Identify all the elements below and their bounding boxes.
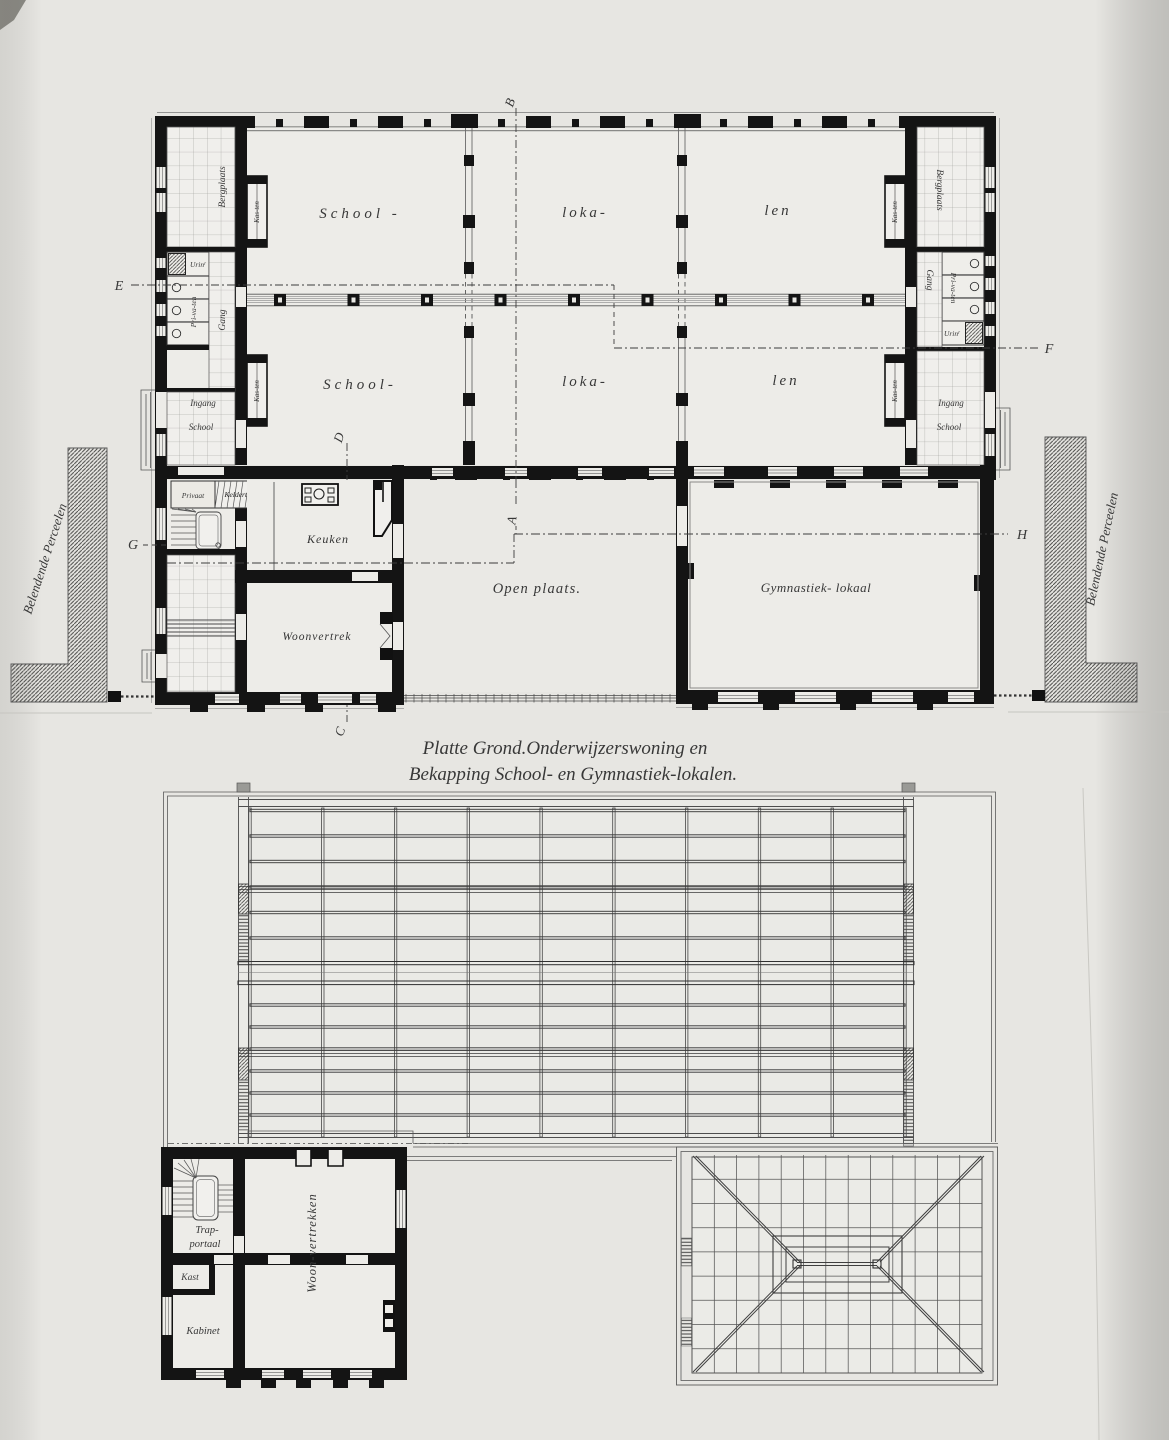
svg-text:G: G <box>128 538 138 553</box>
svg-text:len: len <box>772 373 799 389</box>
svg-text:School: School <box>189 422 214 432</box>
svg-text:Woonvertrek: Woonvertrek <box>283 631 352 643</box>
svg-text:Privaat: Privaat <box>181 491 205 500</box>
svg-text:Keuken: Keuken <box>306 532 349 546</box>
svg-text:Kabinet: Kabinet <box>185 1326 220 1337</box>
svg-text:loka-: loka- <box>562 205 608 221</box>
svg-text:Urinr: Urinr <box>190 260 206 269</box>
svg-text:Pri-va-ten: Pri-va-ten <box>189 296 198 328</box>
svg-text:Bergplaats: Bergplaats <box>218 166 228 208</box>
svg-text:School-: School- <box>323 377 397 393</box>
svg-text:Bergplaats: Bergplaats <box>934 169 944 211</box>
svg-text:loka-: loka- <box>562 374 608 390</box>
svg-text:Platte Grond.Onderwijzerswonin: Platte Grond.Onderwijzerswoning en <box>422 738 708 759</box>
svg-text:len: len <box>764 203 791 219</box>
svg-text:Kas-ten: Kas-ten <box>891 380 899 403</box>
svg-text:Kas-ten: Kas-ten <box>891 201 899 224</box>
svg-text:F: F <box>1044 342 1054 357</box>
svg-text:School: School <box>937 422 962 432</box>
svg-text:Bekapping School- en Gymnastie: Bekapping School- en Gymnastiek-lokalen. <box>409 764 737 785</box>
svg-text:Ingang: Ingang <box>937 398 964 408</box>
svg-text:Pri-va-ten: Pri-va-ten <box>949 272 958 304</box>
svg-text:Gymnastiek- lokaal: Gymnastiek- lokaal <box>761 580 871 595</box>
svg-text:portaal: portaal <box>189 1239 221 1250</box>
svg-text:Ingang: Ingang <box>189 398 216 408</box>
svg-text:Open plaats.: Open plaats. <box>493 581 582 597</box>
svg-text:Gang: Gang <box>218 309 228 330</box>
svg-text:Woon-vertrekken: Woon-vertrekken <box>305 1193 319 1292</box>
svg-text:Kas-ten: Kas-ten <box>253 201 261 224</box>
svg-text:E: E <box>114 279 124 294</box>
svg-text:Urinr: Urinr <box>944 329 960 338</box>
svg-text:School -: School - <box>319 206 401 222</box>
svg-text:H: H <box>1016 528 1028 543</box>
svg-text:Kast: Kast <box>180 1273 199 1283</box>
svg-text:Kas-ten: Kas-ten <box>253 380 261 403</box>
svg-text:Trap-: Trap- <box>195 1225 219 1236</box>
svg-text:Gang: Gang <box>924 269 934 290</box>
